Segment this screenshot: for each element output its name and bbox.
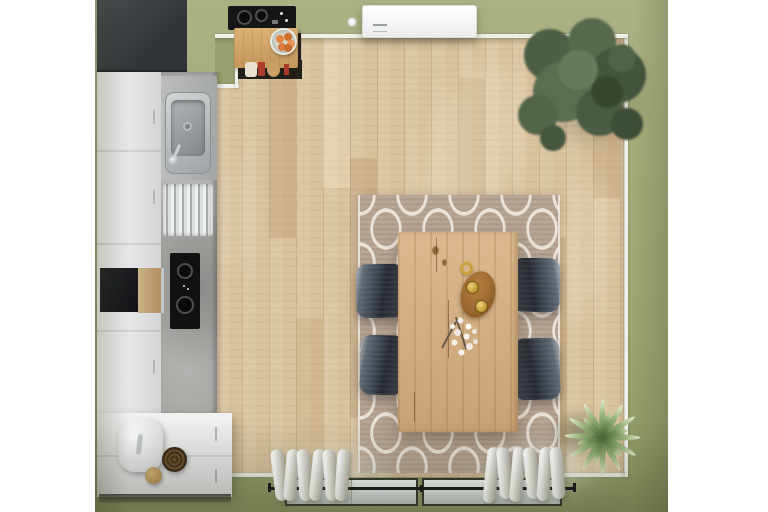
dark-appliance: [100, 268, 138, 312]
blossom-sprig: [440, 312, 480, 358]
burner: [177, 263, 193, 279]
cabinet-handle: [215, 427, 217, 441]
cabinet-seam: [97, 243, 161, 245]
candle: [466, 281, 479, 294]
orange: [276, 35, 284, 43]
gold-cup: [460, 262, 473, 275]
bar-stool: [245, 62, 257, 77]
cooktop-control: [183, 285, 185, 287]
sink-drain: [183, 122, 192, 131]
induction-cooktop: [170, 253, 200, 329]
candle: [475, 300, 488, 313]
burner: [237, 10, 252, 25]
tree-shadow: [533, 42, 651, 154]
bread-bin: [118, 418, 163, 472]
screenshot-canvas: [0, 0, 768, 512]
dish-rack: [163, 184, 213, 236]
petals: [450, 324, 455, 329]
cabinet-handle: [215, 469, 217, 483]
curtain-rod-foot: [573, 483, 576, 492]
white-cabinet-column: [97, 72, 161, 420]
light-reflection: [223, 150, 257, 280]
floor-plank: [323, 38, 350, 188]
faucet: [169, 156, 178, 165]
cooktop-control: [187, 288, 189, 290]
ceiling-spotlight: [347, 17, 357, 27]
unit-label-mark: [373, 24, 387, 32]
bar-stool: [284, 64, 289, 75]
cabinet-handle: [153, 190, 155, 204]
spiky-plant: [563, 397, 643, 477]
wood-board: [138, 268, 164, 313]
wood-crack: [414, 392, 415, 422]
bread-bin-handle: [136, 434, 144, 455]
hob-knob: [285, 19, 288, 22]
jute-ball: [145, 467, 162, 484]
orange: [284, 44, 292, 52]
toe-kick-shadow: [99, 494, 231, 503]
cabinet-seam: [97, 150, 161, 152]
gas-hob: [228, 6, 296, 30]
dining-chair-right-2: [513, 337, 561, 400]
fruit-bowl: [270, 28, 297, 55]
burner: [255, 9, 268, 22]
curtain-right: [485, 447, 569, 507]
bar-stool: [267, 62, 280, 77]
cabinet-handle: [153, 360, 155, 374]
bar-stool: [258, 62, 265, 76]
burner: [176, 296, 194, 314]
curtain-rod-foot: [268, 483, 271, 492]
cabinet-handle: [153, 110, 155, 124]
white-wall-unit: [362, 5, 477, 38]
curtain-left: [273, 449, 353, 507]
wood-knot: [442, 259, 447, 266]
wicker-basket: [162, 447, 187, 472]
wood-crack: [436, 238, 437, 272]
hob-mark: [272, 20, 278, 24]
hob-knob: [280, 12, 283, 15]
room-render: [95, 0, 668, 512]
dining-chair-right-1: [512, 258, 561, 313]
curtain-rod-foot: [420, 485, 423, 492]
cabinet-seam: [97, 330, 161, 332]
twig: [455, 317, 467, 350]
tall-dark-cabinet: [97, 0, 187, 72]
